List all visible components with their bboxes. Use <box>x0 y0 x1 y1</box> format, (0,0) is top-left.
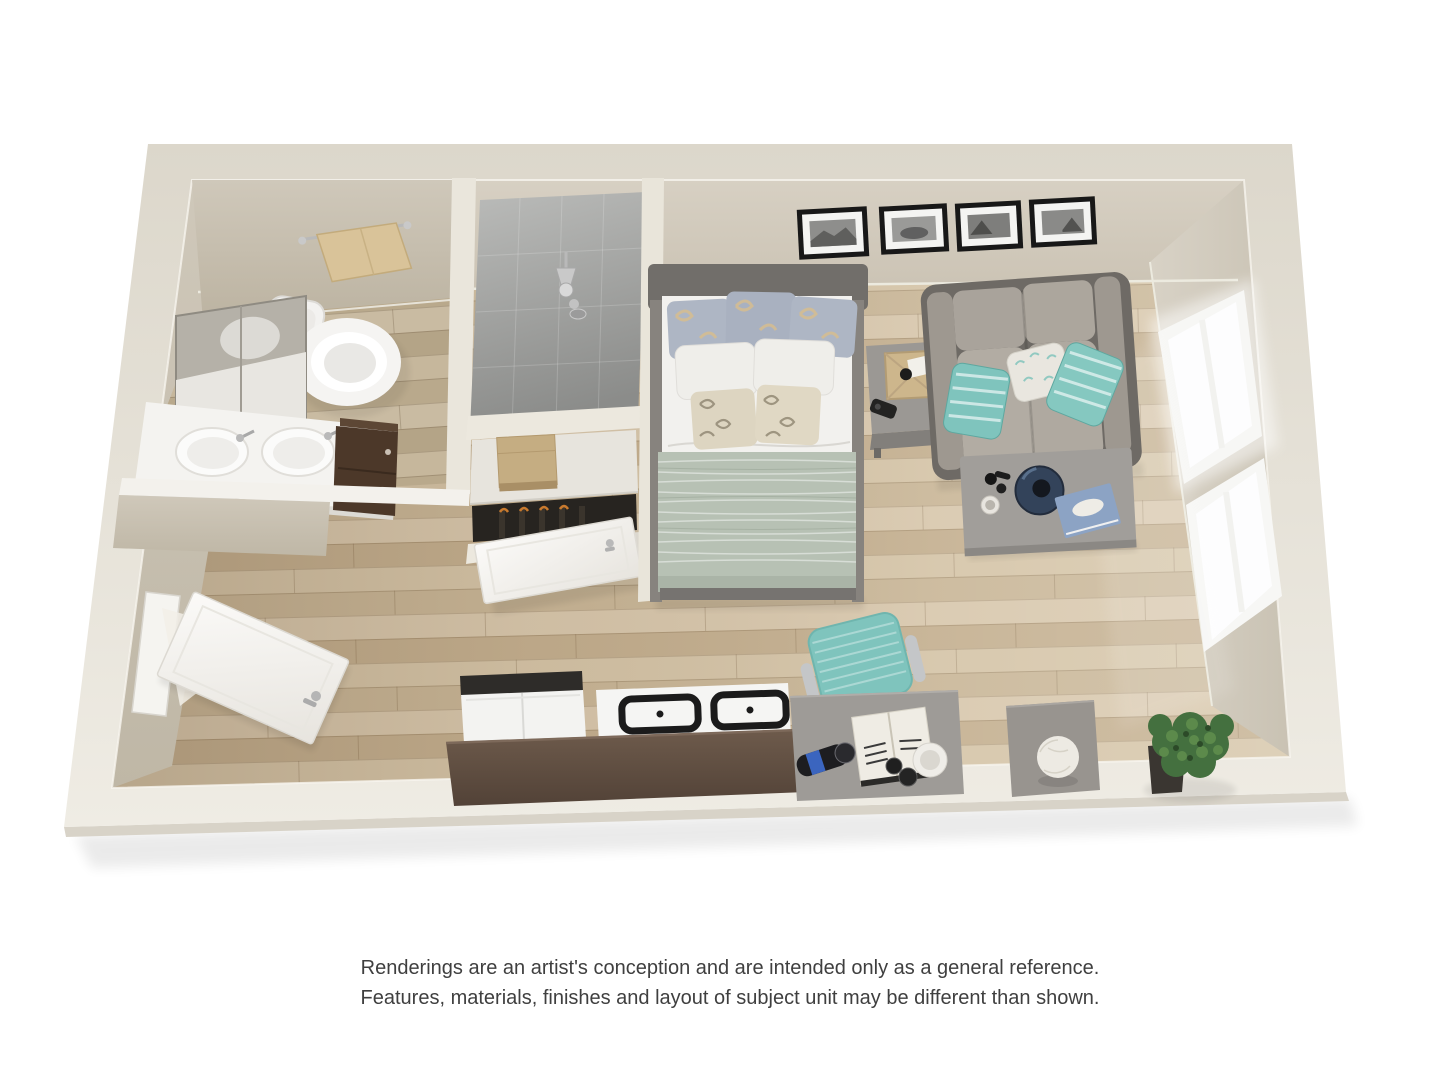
picture-frame-2 <box>879 203 949 254</box>
bed <box>648 264 868 610</box>
picture-frame-4 <box>1029 196 1097 247</box>
duvet <box>658 452 856 600</box>
disclaimer-line-2: Features, materials, finishes and layout… <box>10 983 1440 1013</box>
floor-plan-render <box>0 0 1440 1080</box>
page: Renderings are an artist's conception an… <box>0 0 1440 1080</box>
closet <box>466 406 652 617</box>
disclaimer-line-1: Renderings are an artist's conception an… <box>10 953 1440 983</box>
picture-frame-1 <box>797 206 870 260</box>
picture-frame-3 <box>955 200 1023 251</box>
kitchen <box>446 671 806 806</box>
disclaimer: Renderings are an artist's conception an… <box>10 953 1440 1013</box>
refrigerator <box>460 671 586 743</box>
side-table <box>1006 700 1100 797</box>
coffee-table <box>960 448 1137 561</box>
potted-plant <box>1144 712 1236 802</box>
closet-box <box>497 435 558 492</box>
entry-wall-face <box>113 495 330 556</box>
decor-sphere <box>1037 736 1079 778</box>
teal-striped-pillow-left <box>942 362 1011 441</box>
